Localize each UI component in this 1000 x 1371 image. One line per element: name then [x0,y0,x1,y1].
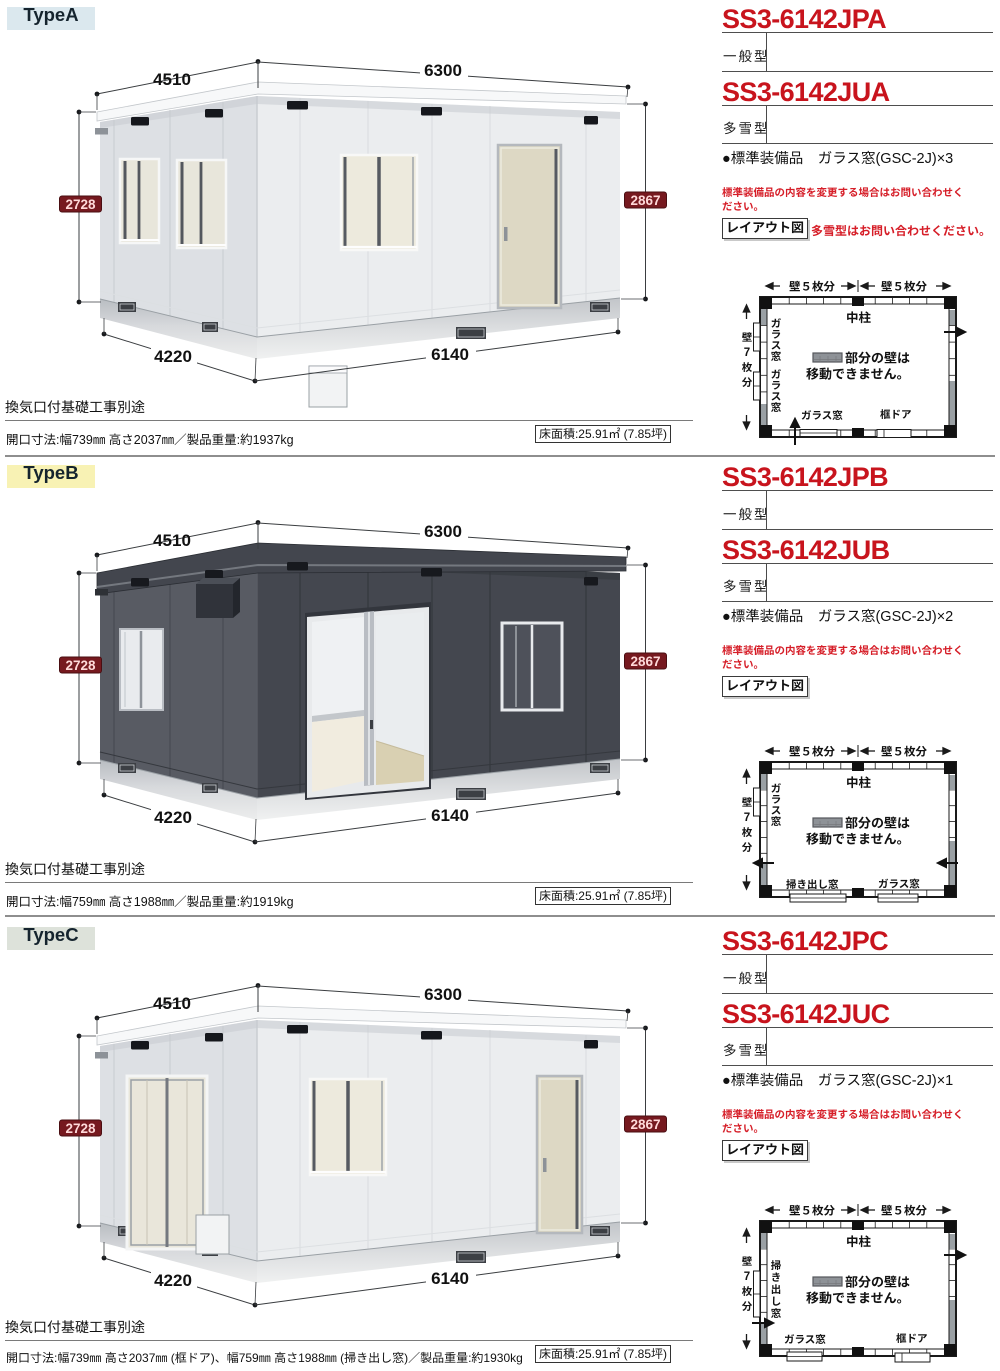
svg-text:6300: 6300 [424,522,462,541]
svg-text:壁５枚分: 壁５枚分 [881,746,927,759]
svg-text:窓: 窓 [771,1308,782,1320]
svg-text:7: 7 [744,1271,750,1283]
svg-text:壁５枚分: 壁５枚分 [789,1205,835,1218]
svg-text:壁５枚分: 壁５枚分 [881,1205,927,1218]
svg-text:枚: 枚 [742,1286,753,1298]
svg-text:枚: 枚 [742,362,753,374]
svg-text:中柱: 中柱 [846,311,872,325]
svg-text:7: 7 [744,812,750,824]
svg-text:掃き出し窓: 掃き出し窓 [786,879,839,891]
svg-text:4220: 4220 [154,347,192,366]
svg-text:4510: 4510 [153,994,191,1013]
svg-text:6140: 6140 [431,806,469,825]
svg-text:窓: 窓 [771,816,782,828]
svg-text:壁: 壁 [742,1256,753,1268]
svg-text:6140: 6140 [431,345,469,364]
svg-text:2867: 2867 [630,654,660,669]
svg-text:壁５枚分: 壁５枚分 [881,281,927,294]
svg-text:2867: 2867 [630,193,660,208]
svg-text:ガラス窓: ガラス窓 [801,410,843,422]
svg-text:框ドア: 框ドア [896,1333,928,1345]
svg-text:部分の壁は: 部分の壁は [845,1275,910,1290]
svg-text:壁: 壁 [742,797,753,809]
svg-text:壁５枚分: 壁５枚分 [789,746,835,759]
svg-text:6300: 6300 [424,61,462,80]
svg-text:中柱: 中柱 [846,776,872,790]
svg-text:壁５枚分: 壁５枚分 [789,281,835,294]
svg-text:ガラス窓: ガラス窓 [784,1334,826,1346]
svg-text:4510: 4510 [153,70,191,89]
svg-text:窓: 窓 [771,351,782,363]
svg-text:移動できません。: 移動できません。 [806,1291,910,1306]
svg-text:き: き [771,1272,782,1284]
svg-text:7: 7 [744,347,750,359]
svg-text:し: し [771,1296,782,1308]
svg-text:框ドア: 框ドア [880,409,912,421]
svg-text:移動できません。: 移動できません。 [806,832,910,847]
svg-text:分: 分 [742,1301,753,1313]
svg-text:壁: 壁 [742,332,753,344]
svg-text:中柱: 中柱 [846,1235,872,1249]
svg-text:移動できません。: 移動できません。 [806,367,910,382]
svg-text:分: 分 [742,377,753,389]
svg-text:4220: 4220 [154,808,192,827]
svg-text:2867: 2867 [630,1117,660,1132]
svg-text:6300: 6300 [424,985,462,1004]
svg-text:2728: 2728 [65,658,96,673]
svg-text:分: 分 [742,842,753,854]
svg-text:窓: 窓 [771,402,782,414]
svg-text:掃: 掃 [771,1260,782,1272]
svg-text:部分の壁は: 部分の壁は [845,351,910,366]
svg-text:2728: 2728 [65,1121,96,1136]
svg-text:4510: 4510 [153,531,191,550]
svg-text:4220: 4220 [154,1271,192,1290]
svg-text:出: 出 [771,1284,782,1296]
svg-text:ガラス窓: ガラス窓 [878,879,920,891]
svg-text:枚: 枚 [742,827,753,839]
svg-text:6140: 6140 [431,1269,469,1288]
svg-text:2728: 2728 [65,197,96,212]
svg-text:部分の壁は: 部分の壁は [845,816,910,831]
